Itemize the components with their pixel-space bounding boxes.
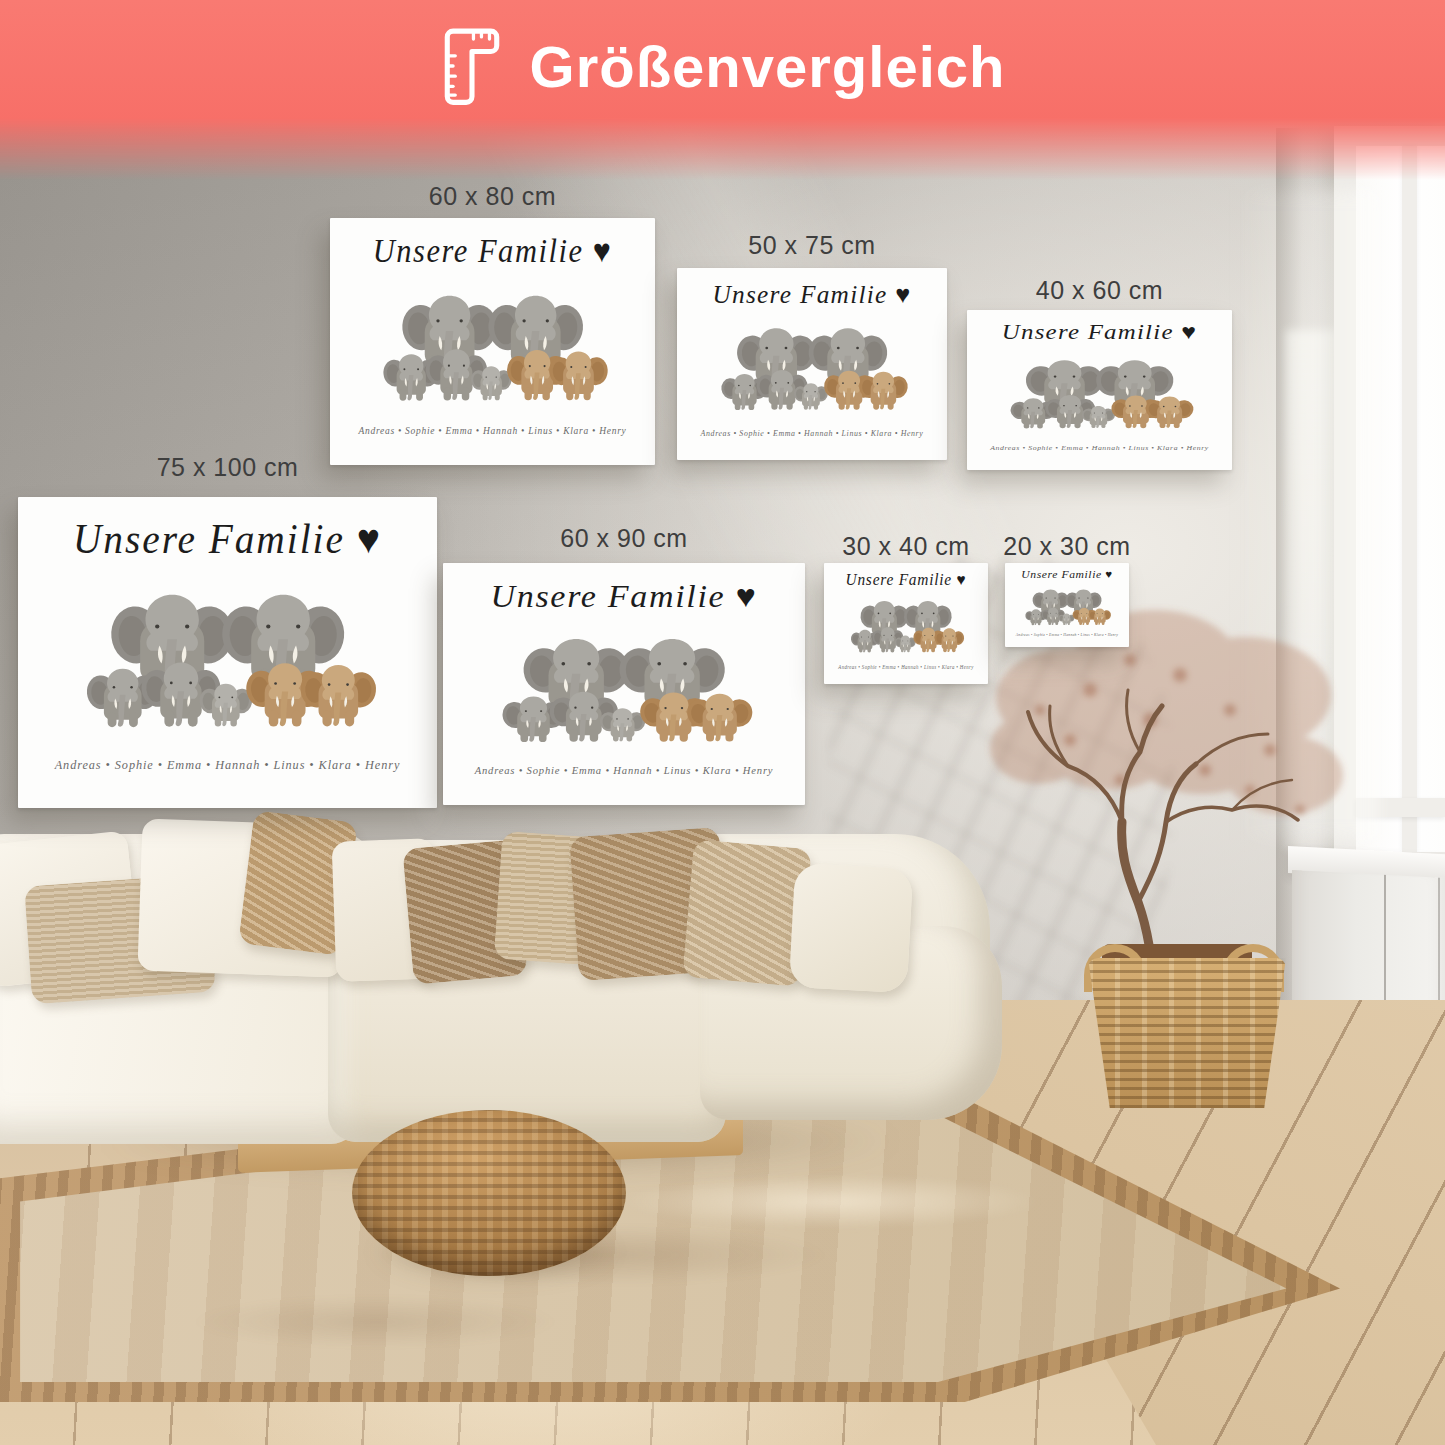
header-banner: Größenvergleich [0,0,1445,190]
elephant [1088,608,1111,625]
svg-text:Andreas • Sophie • Emma • Hann: Andreas • Sophie • Emma • Hannah • Linus… [1015,634,1118,638]
svg-text:Andreas • Sophie • Emma • Hann: Andreas • Sophie • Emma • Hannah • Linus… [54,757,401,772]
poster: Unsere Familie ♥ [330,218,655,465]
svg-text:Andreas • Sophie • Emma • Hann: Andreas • Sophie • Emma • Hannah • Linus… [989,444,1209,452]
elephant [599,708,647,741]
poster-artwork: Unsere Familie ♥ [967,310,1232,470]
poster: Unsere Familie ♥ [967,310,1232,470]
poster: Unsere Familie ♥ [18,497,437,808]
elephant [1081,406,1116,428]
elephant [1058,613,1074,625]
size-label: 40 x 60 cm [1036,276,1163,305]
svg-text:Unsere Familie ♥: Unsere Familie ♥ [846,571,967,589]
size-label: 75 x 100 cm [157,453,299,482]
ruler-icon [440,22,504,110]
poster-layer: 60 x 80 cm Unsere Familie ♥ [0,0,1445,1445]
poster-artwork: Unsere Familie ♥ [18,497,437,808]
elephant [858,372,909,410]
elephant [686,694,754,742]
size-label: 30 x 40 cm [842,532,969,561]
svg-text:Andreas • Sophie • Emma • Hann: Andreas • Sophie • Emma • Hannah • Linus… [837,664,973,670]
svg-text:Andreas • Sophie • Emma • Hann: Andreas • Sophie • Emma • Hannah • Linus… [474,765,774,776]
poster: Unsere Familie ♥ [677,268,947,460]
svg-text:Unsere Familie ♥: Unsere Familie ♥ [1021,568,1112,581]
size-label: 50 x 75 cm [748,231,875,260]
svg-text:Unsere Familie ♥: Unsere Familie ♥ [1002,320,1197,343]
size-label: 20 x 30 cm [1003,532,1130,561]
elephant [934,628,965,652]
poster: Unsere Familie ♥ [1005,563,1129,647]
elephant [299,665,378,726]
elephant [548,351,609,400]
poster-artwork: Unsere Familie ♥ [824,563,988,684]
poster-artwork: Unsere Familie ♥ [677,268,947,460]
size-label: 60 x 90 cm [560,524,687,553]
elephant [470,366,513,400]
poster-artwork: Unsere Familie ♥ [443,563,805,805]
svg-text:Andreas • Sophie • Emma • Hann: Andreas • Sophie • Emma • Hannah • Linus… [358,425,627,436]
elephant [1145,396,1195,428]
svg-text:Andreas • Sophie • Emma • Hann: Andreas • Sophie • Emma • Hannah • Linus… [700,428,924,438]
poster: Unsere Familie ♥ [824,563,988,684]
elephant [198,684,253,727]
svg-text:Unsere Familie ♥: Unsere Familie ♥ [373,233,613,269]
elephant [793,383,828,409]
poster: Unsere Familie ♥ [443,563,805,805]
poster-artwork: Unsere Familie ♥ [330,218,655,465]
svg-text:Unsere Familie ♥: Unsere Familie ♥ [712,280,911,308]
elephant [895,636,917,653]
svg-text:Unsere Familie ♥: Unsere Familie ♥ [73,516,382,562]
banner-title: Größenvergleich [530,33,1006,100]
poster-artwork: Unsere Familie ♥ [1005,563,1129,647]
size-comparison-image: 60 x 80 cm Unsere Familie ♥ [0,0,1445,1445]
banner-content: Größenvergleich [440,18,1006,114]
svg-text:Unsere Familie ♥: Unsere Familie ♥ [491,577,758,613]
